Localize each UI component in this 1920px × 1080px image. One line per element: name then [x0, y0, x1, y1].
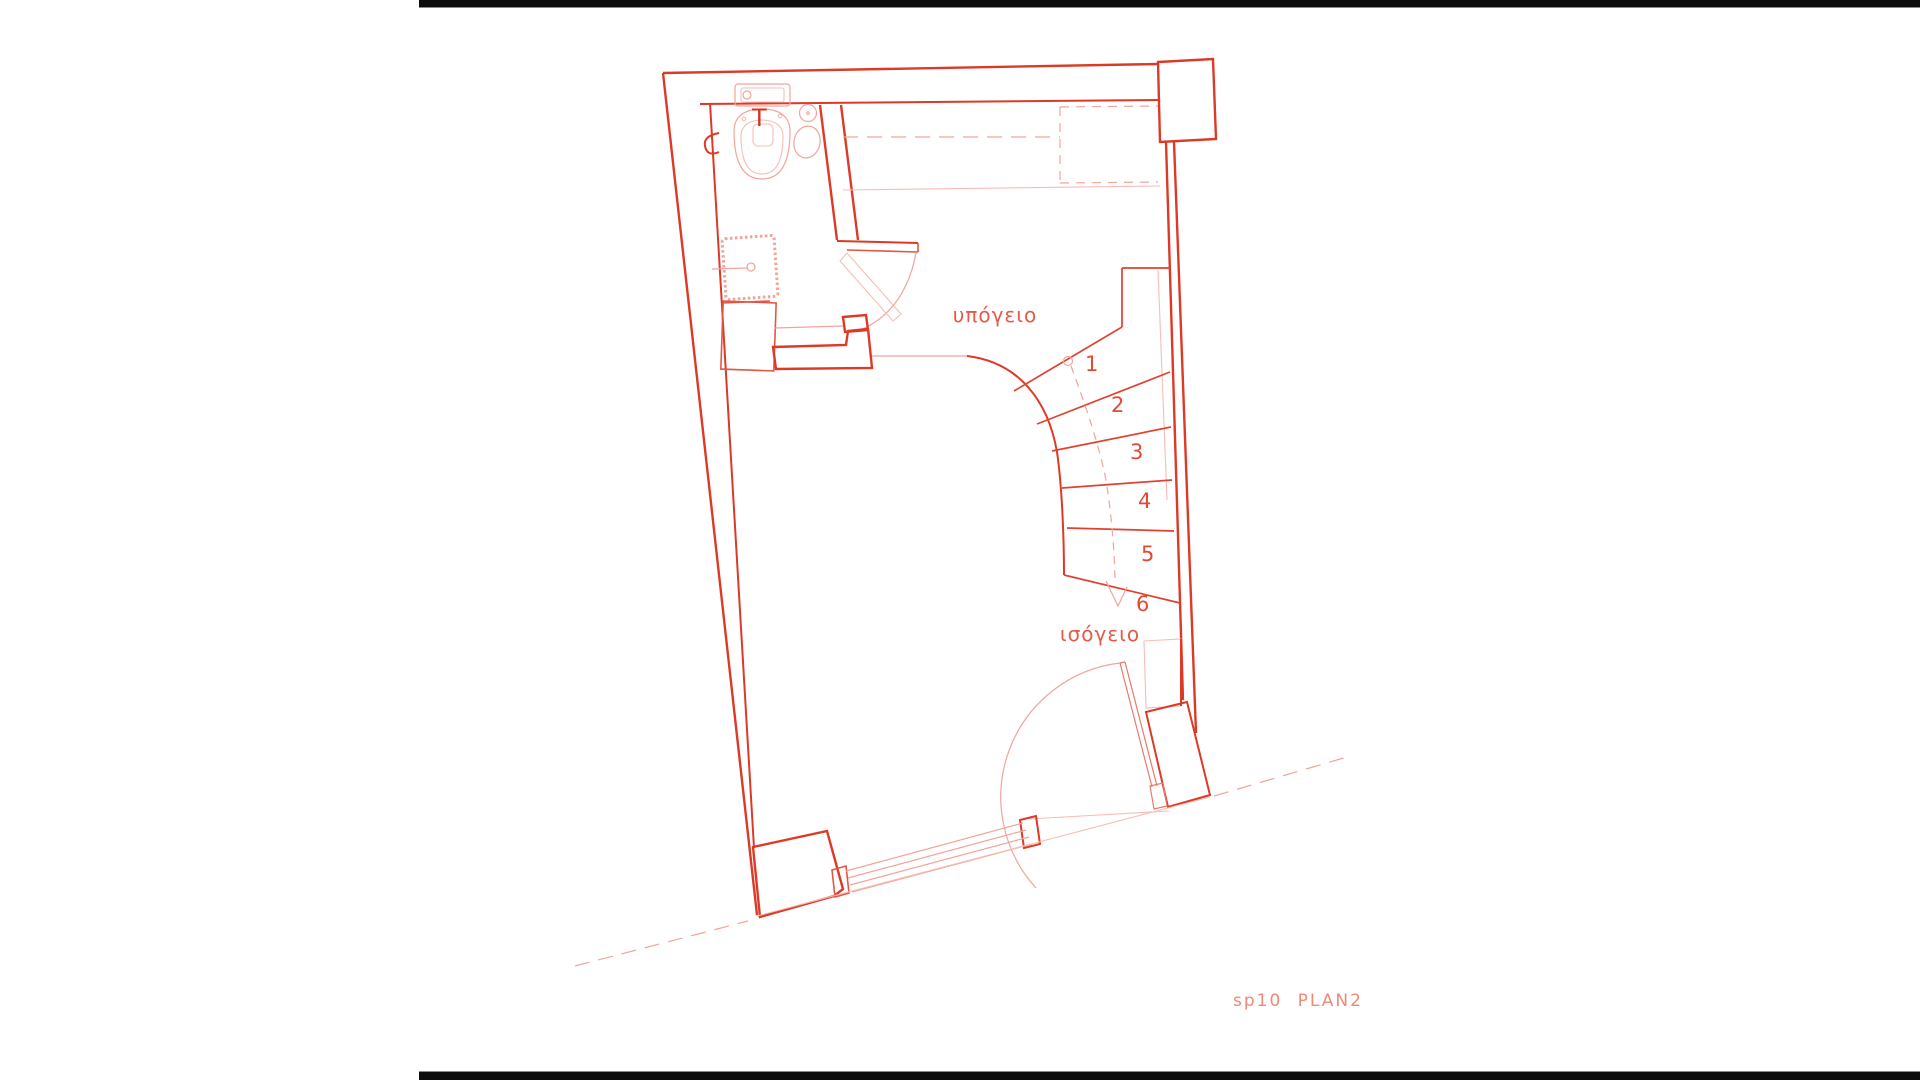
entrance-door — [1001, 639, 1210, 888]
label-basement: υπόγειο — [953, 303, 1038, 327]
door-threshold-block — [1146, 702, 1210, 807]
label-ground-floor: ισόγειο — [1060, 622, 1140, 646]
door-swing-arc — [1001, 663, 1120, 888]
door-niche — [1144, 639, 1181, 708]
step-number-5: 5 — [1141, 542, 1154, 566]
basin-symbol — [791, 124, 823, 161]
entrance-steps — [832, 816, 1040, 897]
floor-drain-symbol — [800, 105, 817, 122]
scanned-plan-page: 1 2 3 4 5 6 — [0, 0, 1920, 1080]
drawing-title: sp10 PLAN2 — [1233, 991, 1363, 1011]
floor-plan-drawing: 1 2 3 4 5 6 — [0, 0, 1920, 1080]
step-number-3: 3 — [1130, 440, 1143, 464]
step-number-2: 2 — [1111, 393, 1124, 417]
stair-curved-wall — [967, 356, 1064, 575]
toilet-mark-label: T — [751, 104, 767, 132]
street-boundary-line — [575, 757, 1347, 966]
door-leaf — [1120, 662, 1167, 809]
void-dashed-rect — [1060, 106, 1158, 183]
bottom-corner-pier — [753, 831, 843, 917]
step-number-6: 6 — [1136, 592, 1149, 616]
lower-bathroom-wall — [721, 301, 776, 371]
upper-floor-overlay-lines — [843, 106, 1160, 190]
step-number-1: 1 — [1085, 352, 1098, 376]
bathroom — [705, 84, 918, 371]
outer-walls — [663, 59, 1216, 917]
stair-landing — [773, 315, 967, 369]
stair-tread-lines — [1014, 268, 1180, 603]
down-arrow-icon — [1106, 581, 1127, 606]
step-number-4: 4 — [1138, 489, 1151, 513]
step-jamb-right — [1020, 816, 1040, 848]
corner-column — [1158, 59, 1216, 142]
